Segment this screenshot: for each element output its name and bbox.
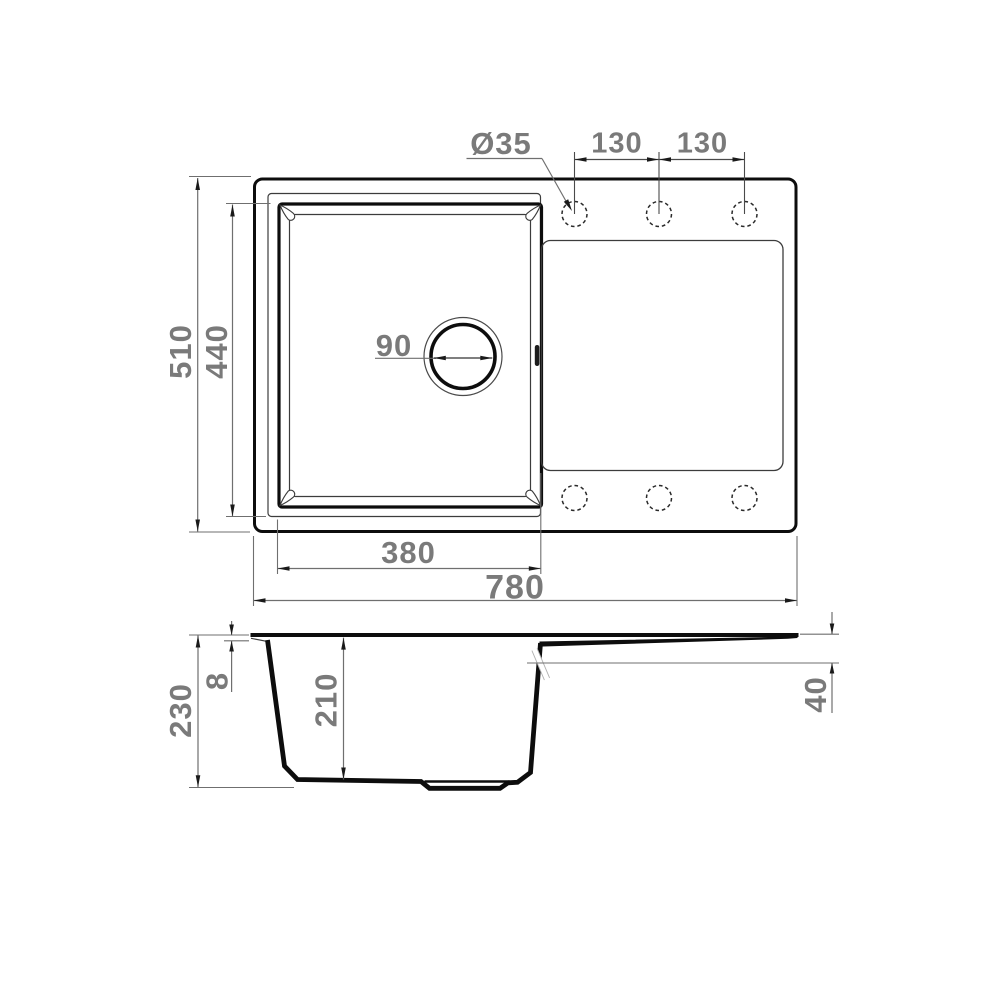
svg-text:90: 90 [376,328,412,363]
svg-text:780: 780 [485,569,545,607]
svg-text:230: 230 [163,683,198,738]
svg-text:440: 440 [199,324,234,379]
svg-text:210: 210 [309,673,344,728]
svg-text:130: 130 [677,128,728,160]
svg-text:380: 380 [381,535,436,570]
svg-text:Ø35: Ø35 [470,126,532,161]
svg-text:8: 8 [200,672,235,690]
svg-text:40: 40 [798,676,833,712]
svg-text:130: 130 [591,128,642,160]
svg-text:510: 510 [163,324,198,379]
